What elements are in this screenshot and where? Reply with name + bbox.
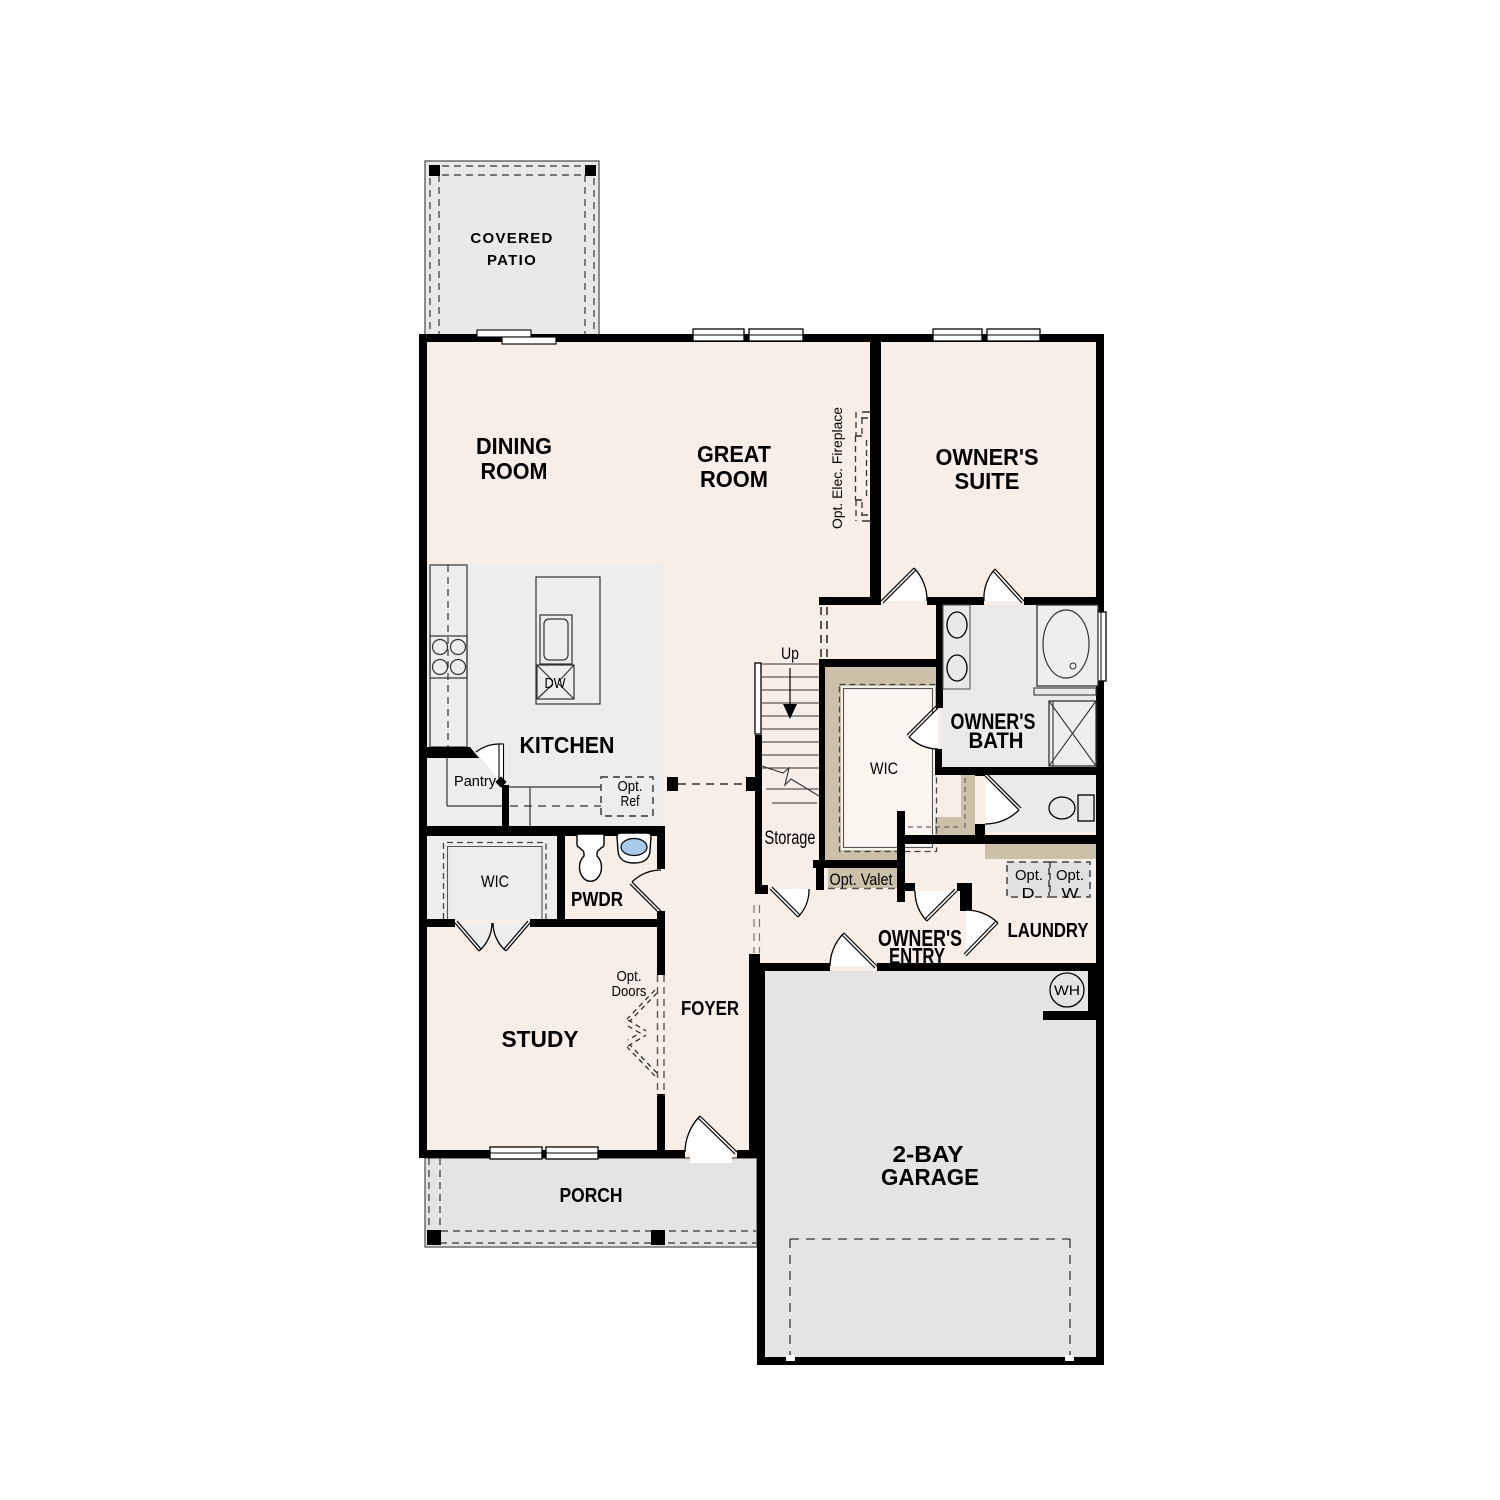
svg-text:PWDR: PWDR (571, 889, 623, 911)
svg-text:WH: WH (1054, 982, 1080, 998)
svg-text:DW: DW (545, 675, 567, 692)
svg-text:ENTRY: ENTRY (889, 943, 945, 969)
svg-text:STUDY: STUDY (502, 1026, 579, 1052)
svg-text:GARAGE: GARAGE (881, 1164, 979, 1190)
svg-text:PORCH: PORCH (560, 1185, 623, 1207)
svg-text:LAUNDRY: LAUNDRY (1008, 920, 1090, 942)
svg-text:KITCHEN: KITCHEN (520, 732, 615, 758)
svg-text:GREAT: GREAT (697, 441, 771, 467)
svg-text:ROOM: ROOM (481, 458, 548, 484)
svg-text:ROOM: ROOM (700, 466, 768, 492)
svg-text:Doors: Doors (612, 983, 647, 1000)
svg-text:Up: Up (781, 644, 799, 663)
svg-text:WIC: WIC (870, 759, 898, 778)
svg-text:Opt.: Opt. (1056, 867, 1084, 884)
svg-text:Opt. Elec. Fireplace: Opt. Elec. Fireplace (829, 407, 845, 529)
svg-text:Pantry: Pantry (454, 773, 496, 790)
svg-text:WIC: WIC (481, 872, 509, 891)
svg-text:OWNER'S: OWNER'S (936, 444, 1039, 470)
svg-text:BATH: BATH (969, 728, 1024, 753)
svg-text:DINING: DINING (476, 433, 552, 459)
svg-text:Opt.: Opt. (1015, 867, 1043, 884)
svg-text:D: D (1022, 885, 1035, 902)
svg-text:COVERED: COVERED (470, 230, 553, 247)
svg-text:Opt. Valet: Opt. Valet (830, 870, 893, 889)
svg-text:Storage: Storage (765, 828, 816, 849)
svg-text:PATIO: PATIO (487, 252, 537, 269)
svg-text:FOYER: FOYER (681, 998, 739, 1020)
svg-text:W: W (1062, 885, 1080, 902)
svg-text:Ref: Ref (621, 793, 641, 810)
svg-text:SUITE: SUITE (955, 468, 1020, 494)
